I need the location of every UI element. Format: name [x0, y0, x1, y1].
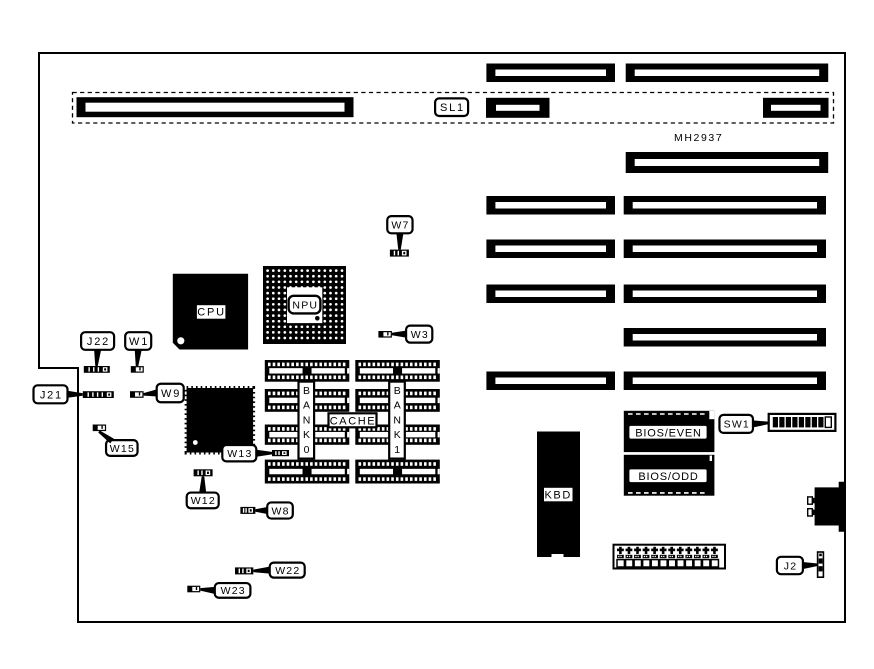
svg-text:K: K	[303, 429, 310, 441]
svg-text:W12: W12	[191, 495, 216, 507]
svg-text:W23: W23	[221, 585, 246, 597]
svg-text:B: B	[303, 385, 310, 397]
svg-text:W1: W1	[129, 336, 149, 348]
svg-text:K: K	[394, 429, 401, 441]
svg-text:MH2937: MH2937	[674, 132, 723, 144]
svg-text:A: A	[303, 400, 310, 412]
svg-text:J22: J22	[87, 336, 110, 348]
svg-text:CPU: CPU	[197, 307, 226, 319]
svg-text:0: 0	[304, 444, 310, 456]
svg-text:W8: W8	[272, 505, 290, 517]
svg-text:W7: W7	[391, 219, 409, 231]
svg-text:SL1: SL1	[440, 102, 465, 114]
svg-text:A: A	[394, 400, 401, 412]
svg-text:W22: W22	[275, 565, 300, 577]
svg-text:BIOS/EVEN: BIOS/EVEN	[635, 427, 702, 439]
svg-text:CACHE: CACHE	[330, 415, 377, 427]
svg-text:SW1: SW1	[724, 419, 750, 431]
svg-text:BIOS/ODD: BIOS/ODD	[638, 471, 698, 483]
svg-text:W15: W15	[110, 443, 135, 455]
svg-text:KBD: KBD	[544, 489, 571, 501]
svg-text:W13: W13	[227, 448, 252, 460]
svg-text:NPU: NPU	[292, 299, 318, 311]
svg-text:B: B	[394, 385, 401, 397]
svg-text:1: 1	[394, 444, 400, 456]
svg-text:W9: W9	[161, 388, 181, 400]
svg-text:N: N	[303, 414, 311, 426]
svg-text:J2: J2	[784, 560, 798, 572]
svg-text:J21: J21	[40, 389, 63, 401]
svg-text:W3: W3	[411, 329, 429, 341]
svg-text:N: N	[393, 414, 401, 426]
